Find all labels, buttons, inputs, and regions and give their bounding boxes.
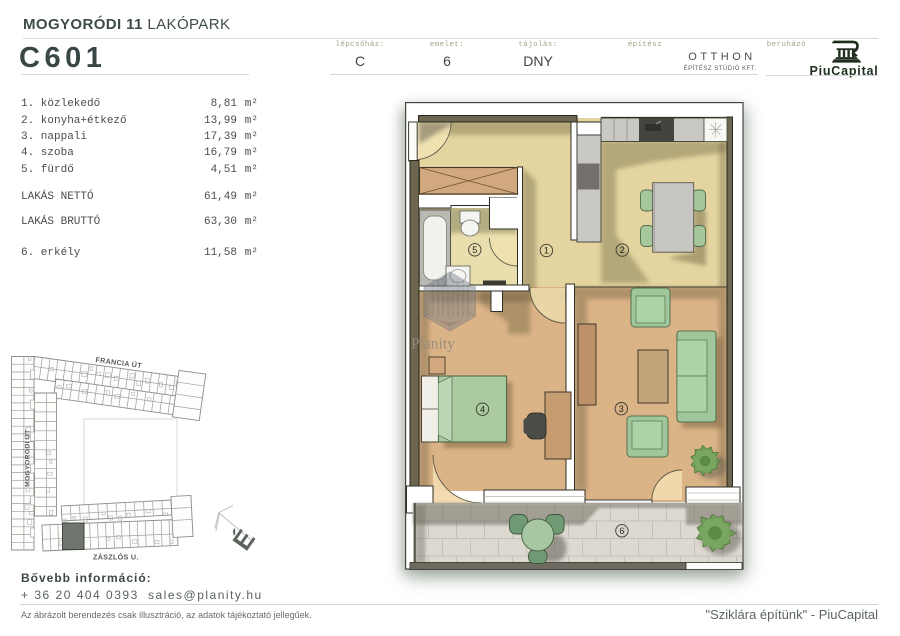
svg-text:5: 5: [472, 245, 477, 255]
svg-text:4: 4: [480, 404, 485, 414]
svg-text:ZÁSZLÓS U.: ZÁSZLÓS U.: [93, 553, 139, 562]
svg-text:6: 6: [619, 526, 624, 536]
svg-text:3: 3: [619, 404, 624, 414]
svg-text:2: 2: [620, 245, 625, 255]
svg-text:1: 1: [544, 246, 549, 256]
svg-text:É: É: [226, 524, 261, 555]
svg-text:Planity: Planity: [411, 336, 455, 353]
svg-text:MOGYORÓDI ÚT: MOGYORÓDI ÚT: [23, 429, 32, 487]
